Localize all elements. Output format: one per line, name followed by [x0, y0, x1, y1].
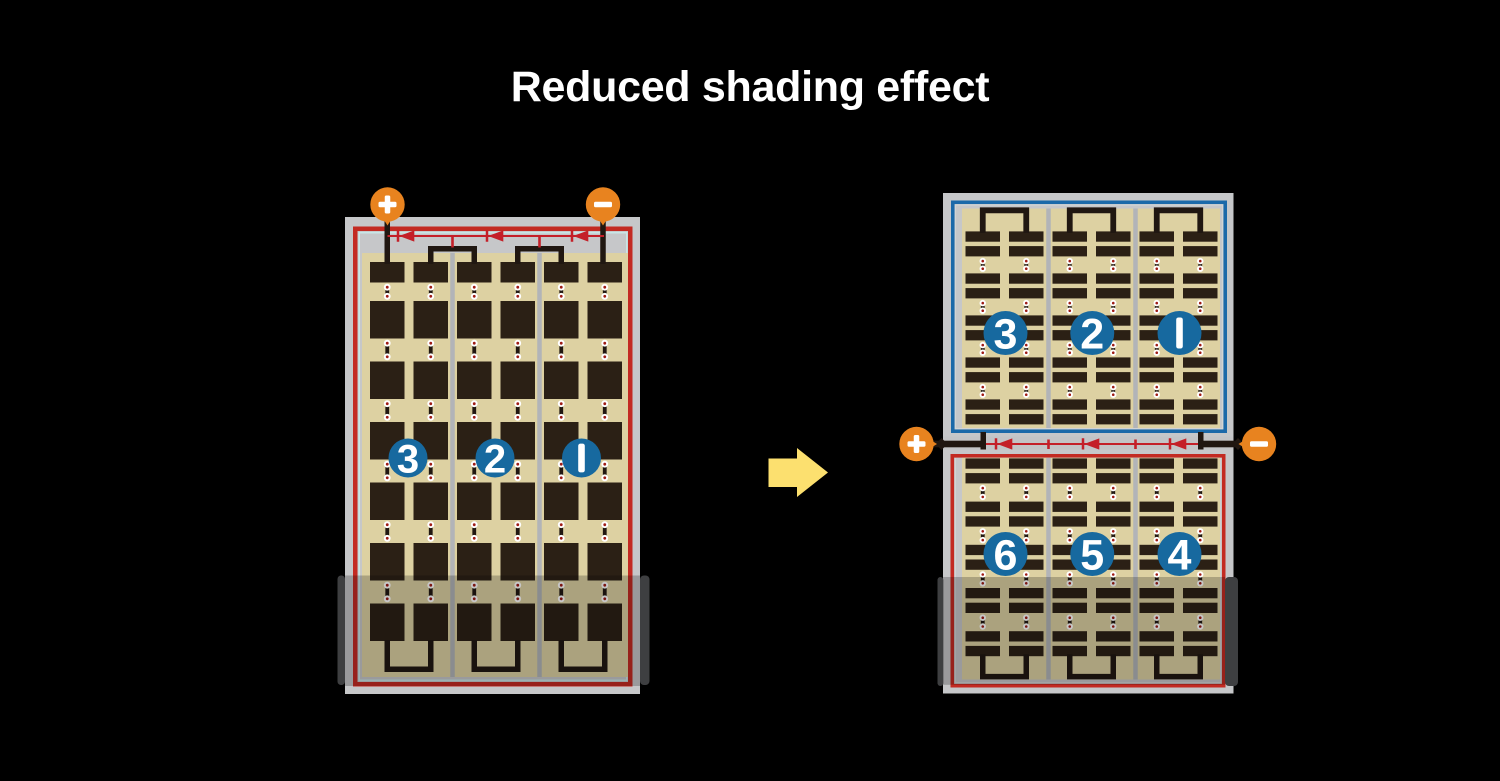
svg-text:5: 5	[1080, 532, 1104, 580]
svg-text:3: 3	[397, 438, 419, 482]
svg-text:3: 3	[994, 311, 1018, 359]
svg-text:6: 6	[994, 532, 1018, 580]
svg-text:2: 2	[1080, 311, 1104, 359]
svg-text:4: 4	[1168, 532, 1192, 580]
svg-text:2: 2	[484, 438, 506, 482]
